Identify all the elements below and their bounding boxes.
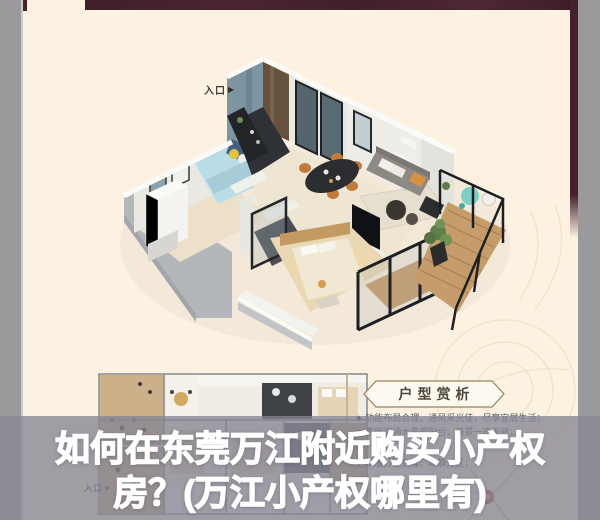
caption-line-1: 如何在东莞万江附近购买小产权 bbox=[0, 428, 600, 472]
top-left-border-tick bbox=[23, 0, 27, 11]
caption-text: 如何在东莞万江附近购买小产权 房？(万江小产权哪里有) bbox=[0, 428, 600, 516]
right-border-bar bbox=[570, 0, 578, 238]
top-border-bar bbox=[85, 0, 574, 10]
caption-line-2: 房？(万江小产权哪里有) bbox=[0, 472, 600, 516]
poster-canvas: 入口 ▶ 入 bbox=[0, 0, 600, 520]
